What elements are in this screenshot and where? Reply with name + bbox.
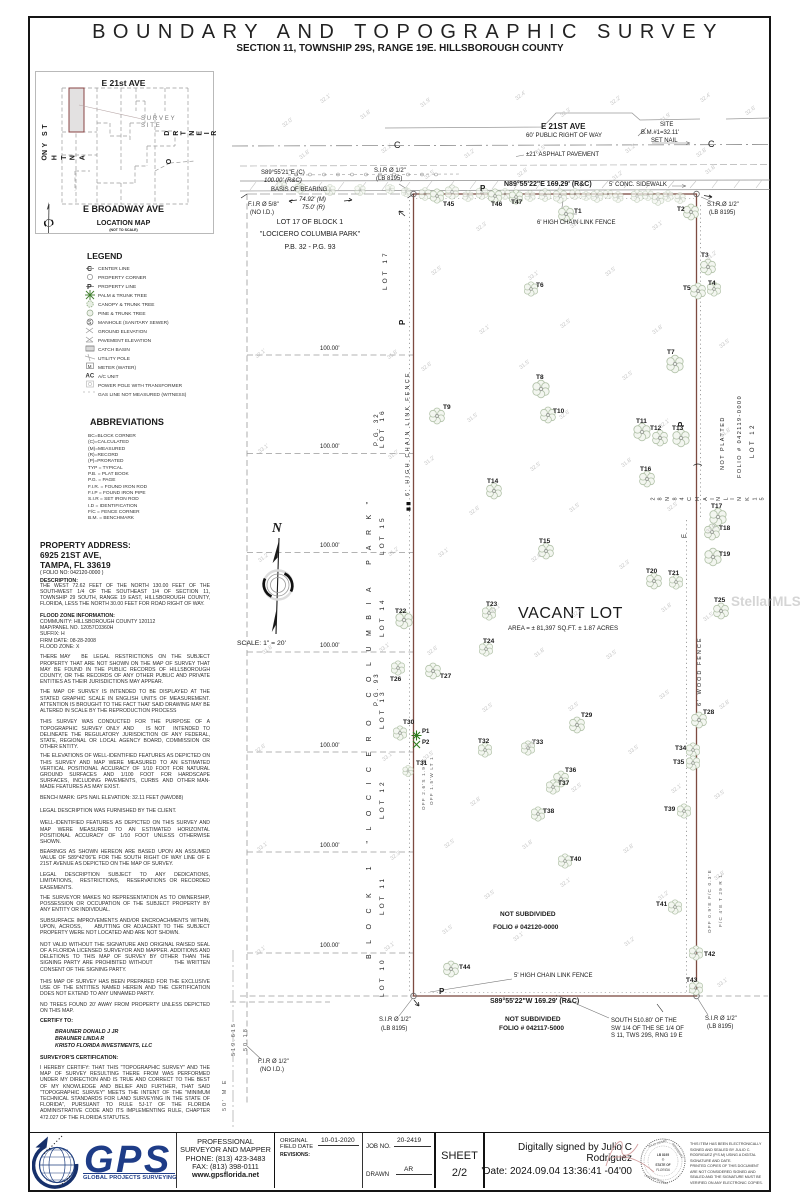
svg-text:LB 8195: LB 8195 [657, 1153, 669, 1157]
svg-text:Licensed Surveyor: Licensed Surveyor [644, 1173, 669, 1185]
svg-text:FLORIDA: FLORIDA [656, 1168, 670, 1172]
svg-text:®: ® [662, 1158, 665, 1162]
svg-text:STATE OF: STATE OF [655, 1163, 670, 1167]
